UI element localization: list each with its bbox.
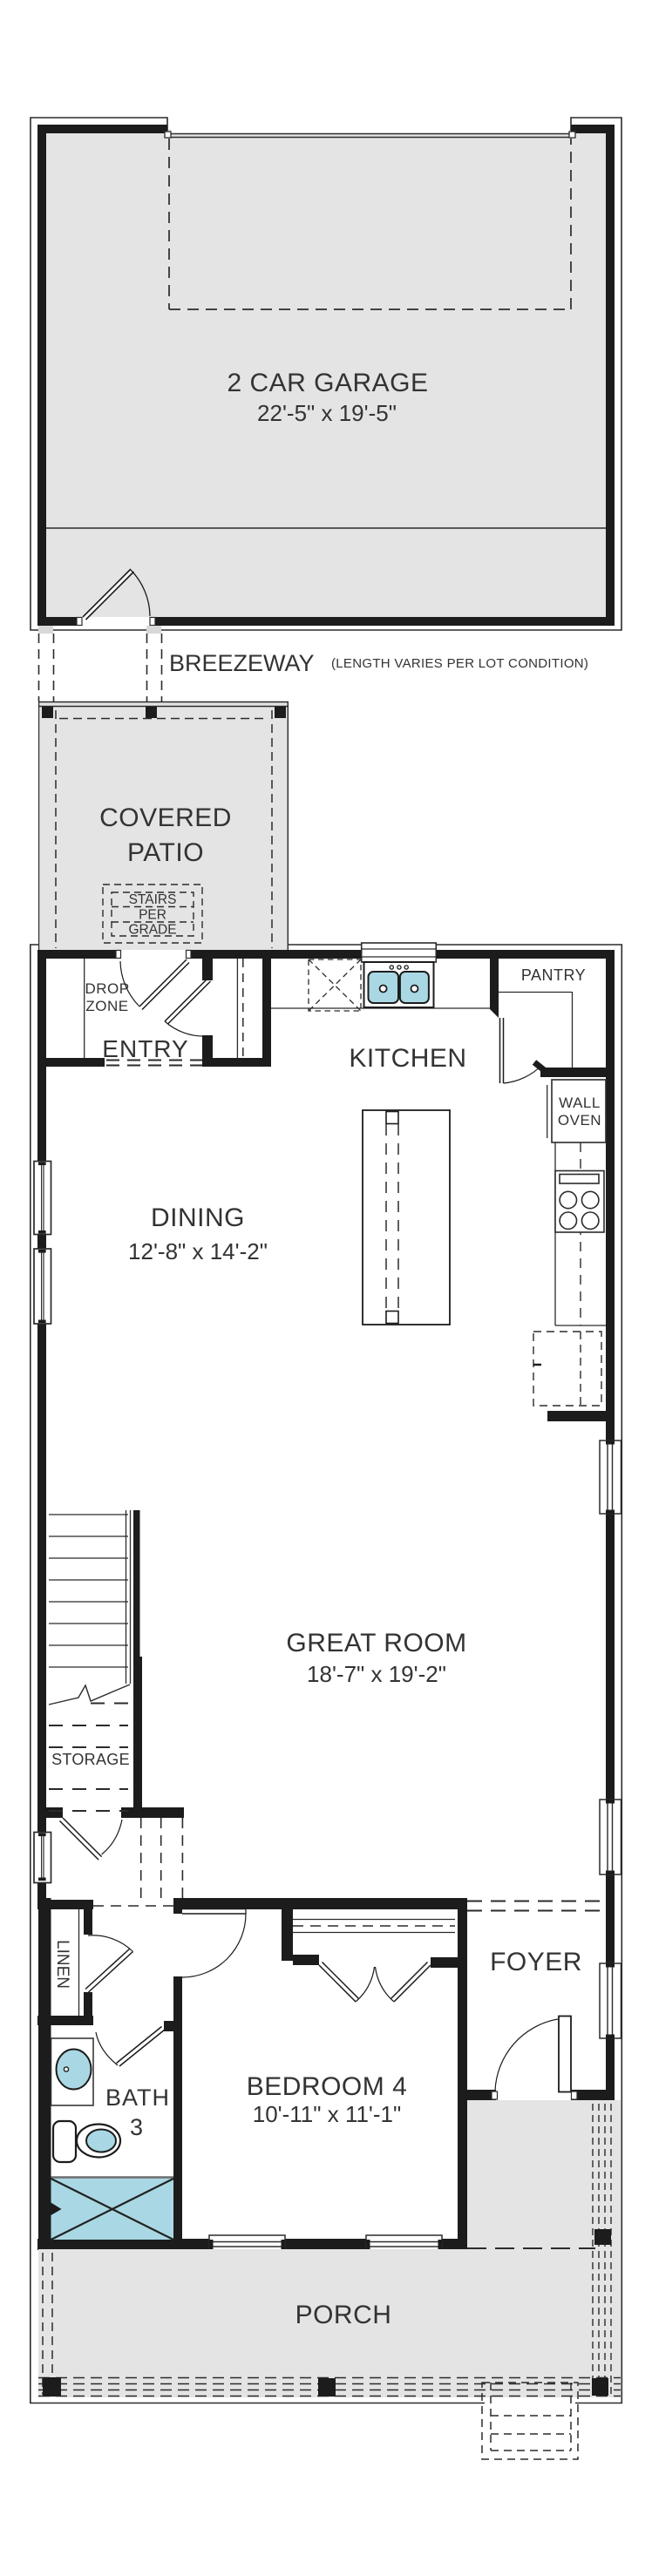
- svg-text:(LENGTH VARIES PER LOT CONDITI: (LENGTH VARIES PER LOT CONDITION): [331, 656, 588, 671]
- svg-text:STORAGE: STORAGE: [51, 1751, 130, 1768]
- svg-text:OVEN: OVEN: [558, 1112, 601, 1129]
- svg-text:BEDROOM 4: BEDROOM 4: [247, 2072, 408, 2101]
- svg-text:COVERED: COVERED: [99, 803, 232, 832]
- svg-text:PORCH: PORCH: [295, 2301, 392, 2329]
- svg-text:WALL: WALL: [559, 1095, 601, 1111]
- svg-text:3: 3: [130, 2114, 144, 2140]
- svg-text:BREEZEWAY: BREEZEWAY: [169, 650, 315, 676]
- svg-text:18'-7" x 19'-2": 18'-7" x 19'-2": [307, 1661, 446, 1687]
- svg-text:GREAT ROOM: GREAT ROOM: [286, 1629, 466, 1657]
- svg-text:22'-5" x 19'-5": 22'-5" x 19'-5": [257, 400, 397, 426]
- svg-text:FOYER: FOYER: [490, 1948, 582, 1976]
- svg-text:ENTRY: ENTRY: [102, 1035, 188, 1062]
- svg-text:BATH: BATH: [105, 2085, 170, 2111]
- svg-text:ZONE: ZONE: [85, 998, 128, 1014]
- svg-text:PANTRY: PANTRY: [521, 966, 586, 984]
- svg-text:LINEN: LINEN: [53, 1940, 71, 1989]
- svg-text:12'-8" x 14'-2": 12'-8" x 14'-2": [128, 1238, 268, 1264]
- svg-text:DINING: DINING: [151, 1203, 245, 1232]
- svg-text:2 CAR GARAGE: 2 CAR GARAGE: [227, 369, 428, 397]
- svg-text:DROP: DROP: [85, 980, 129, 997]
- svg-text:STAIRS: STAIRS: [129, 892, 177, 907]
- svg-text:GRADE: GRADE: [128, 923, 176, 938]
- svg-text:PER: PER: [139, 908, 166, 923]
- svg-text:PATIO: PATIO: [127, 838, 204, 867]
- svg-text:KITCHEN: KITCHEN: [349, 1044, 466, 1073]
- svg-text:10'-11" x 11'-1": 10'-11" x 11'-1": [253, 2101, 402, 2127]
